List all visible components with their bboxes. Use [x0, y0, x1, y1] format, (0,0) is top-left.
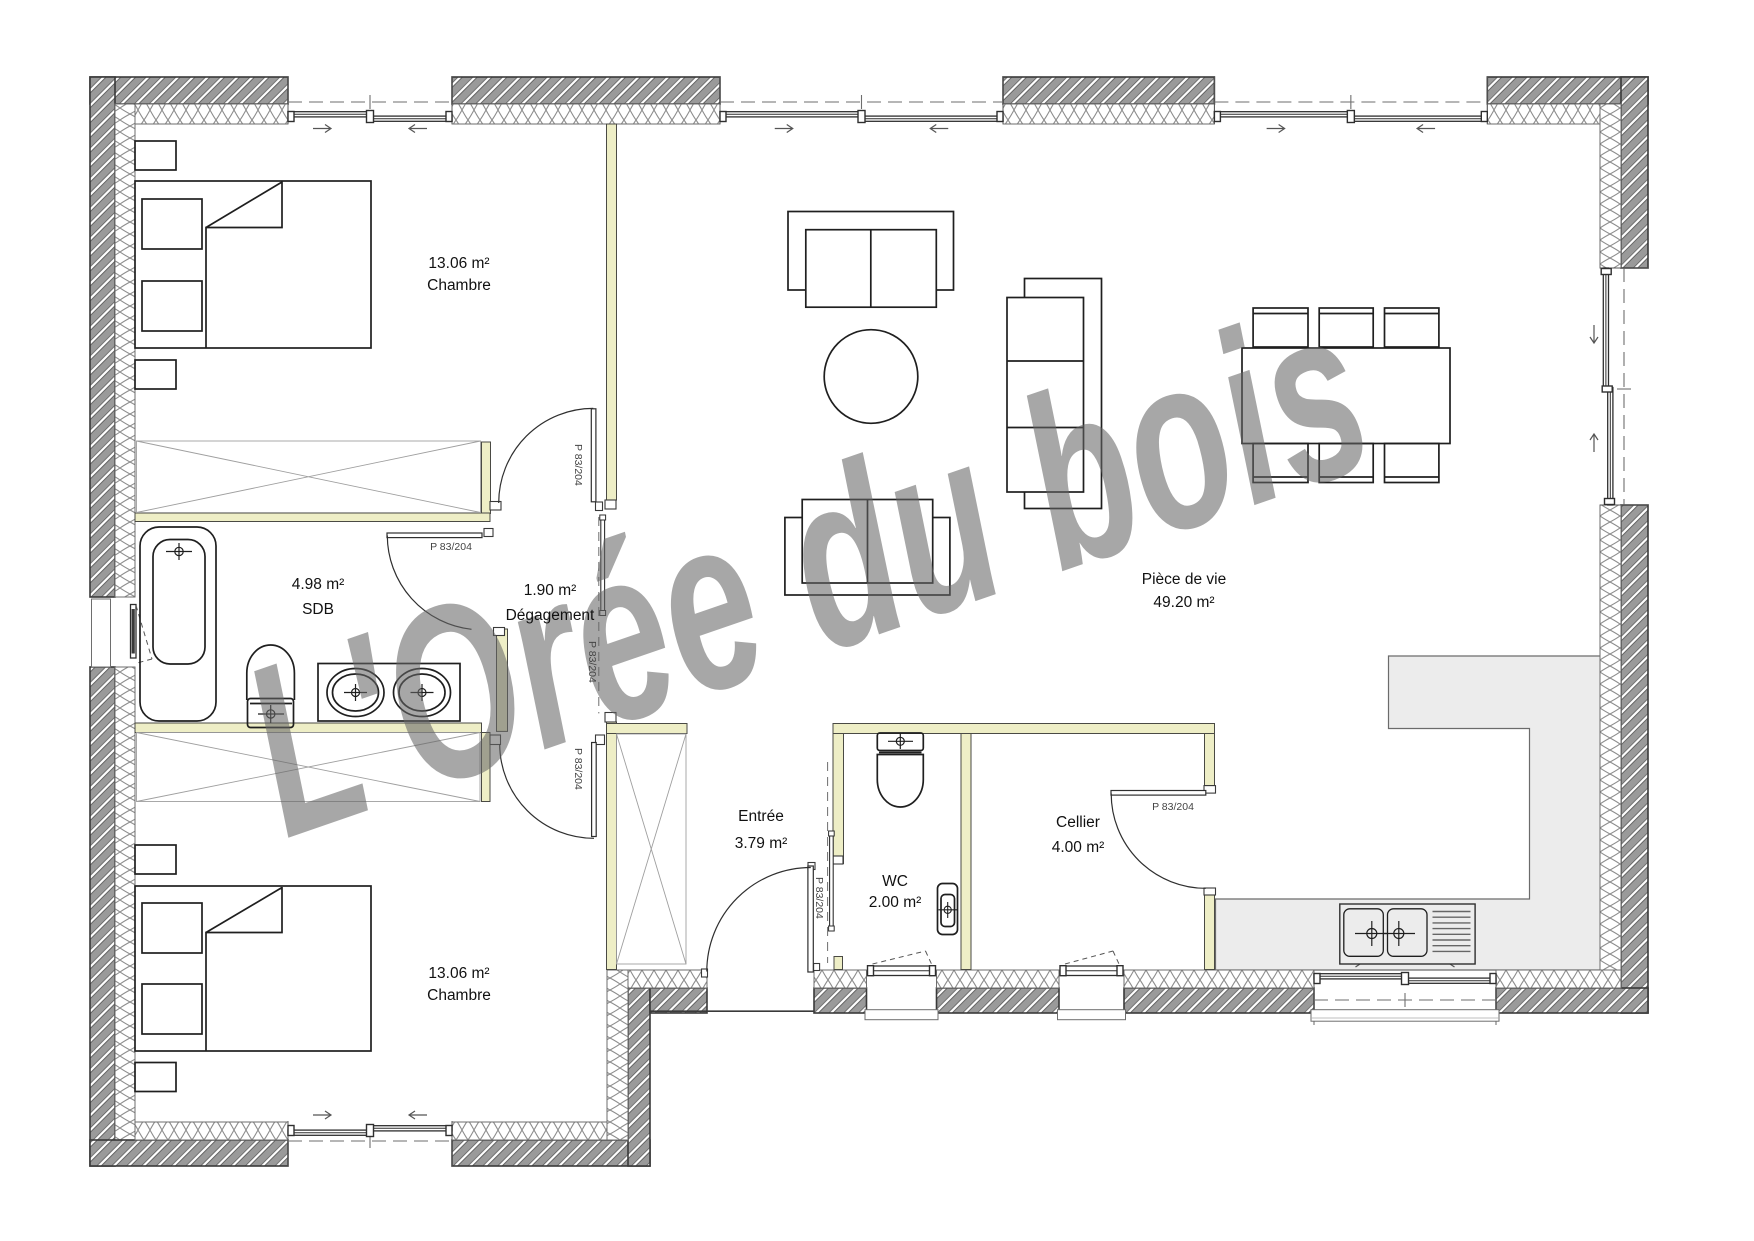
- svg-text:Cellier: Cellier: [1056, 814, 1100, 831]
- svg-text:1.90 m²: 1.90 m²: [524, 582, 577, 599]
- svg-text:Pièce de vie: Pièce de vie: [1142, 571, 1226, 588]
- svg-text:49.20 m²: 49.20 m²: [1153, 594, 1214, 611]
- svg-text:SDB: SDB: [302, 601, 334, 618]
- svg-text:P 83/204: P 83/204: [586, 641, 598, 683]
- svg-text:P 83/204: P 83/204: [572, 748, 584, 790]
- svg-text:4.00 m²: 4.00 m²: [1052, 839, 1105, 856]
- svg-text:P 83/204: P 83/204: [813, 877, 825, 919]
- svg-text:4.98 m²: 4.98 m²: [292, 576, 345, 593]
- svg-text:13.06 m²: 13.06 m²: [428, 255, 489, 272]
- svg-text:2.00 m²: 2.00 m²: [869, 894, 922, 911]
- svg-text:13.06 m²: 13.06 m²: [428, 965, 489, 982]
- svg-text:P 83/204: P 83/204: [1152, 801, 1194, 813]
- svg-text:Dégagement: Dégagement: [506, 607, 595, 624]
- svg-text:Chambre: Chambre: [427, 277, 491, 294]
- svg-text:Chambre: Chambre: [427, 987, 491, 1004]
- svg-text:P 83/204: P 83/204: [572, 444, 584, 486]
- svg-text:WC: WC: [882, 873, 908, 890]
- svg-text:Entrée: Entrée: [738, 808, 784, 825]
- svg-text:P 83/204: P 83/204: [430, 541, 472, 553]
- svg-text:3.79 m²: 3.79 m²: [735, 835, 788, 852]
